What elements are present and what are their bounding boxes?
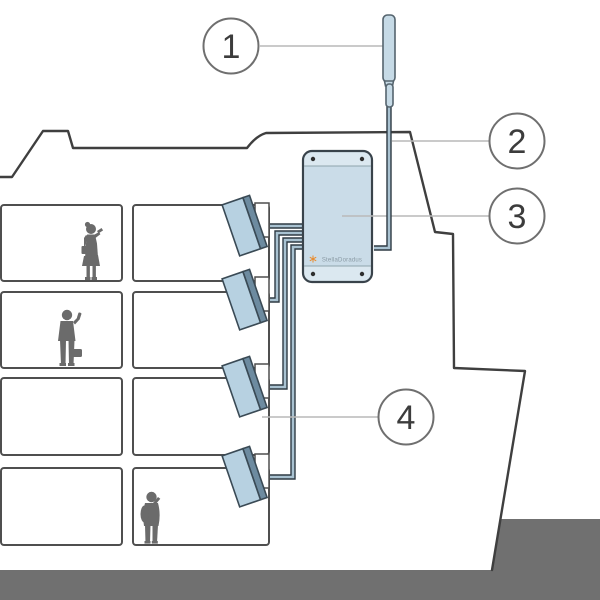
bottom-ground — [0, 570, 600, 600]
cabin-room-4-left — [1, 468, 122, 545]
screw-icon — [311, 157, 315, 161]
screw-icon — [360, 272, 364, 276]
outdoor-antenna — [383, 15, 395, 107]
callout-1: 1 — [204, 19, 259, 74]
callout-number-4: 4 — [397, 399, 416, 437]
callout-2: 2 — [490, 114, 545, 169]
logo-text: StellaDoradus — [322, 258, 362, 264]
callout-number-2: 2 — [508, 123, 527, 161]
callout-3: 3 — [490, 189, 545, 244]
callout-4: 4 — [379, 390, 434, 445]
signal-repeater-ship-diagram: StellaDoradus — [0, 0, 600, 600]
cabin-room-3-left — [1, 378, 122, 455]
diagram-canvas: StellaDoradus — [0, 0, 600, 600]
callout-number-3: 3 — [508, 198, 527, 236]
screw-icon — [360, 157, 364, 161]
cabin-room-1-left — [1, 205, 122, 281]
callout-number-1: 1 — [222, 28, 241, 66]
screw-icon — [311, 272, 315, 276]
